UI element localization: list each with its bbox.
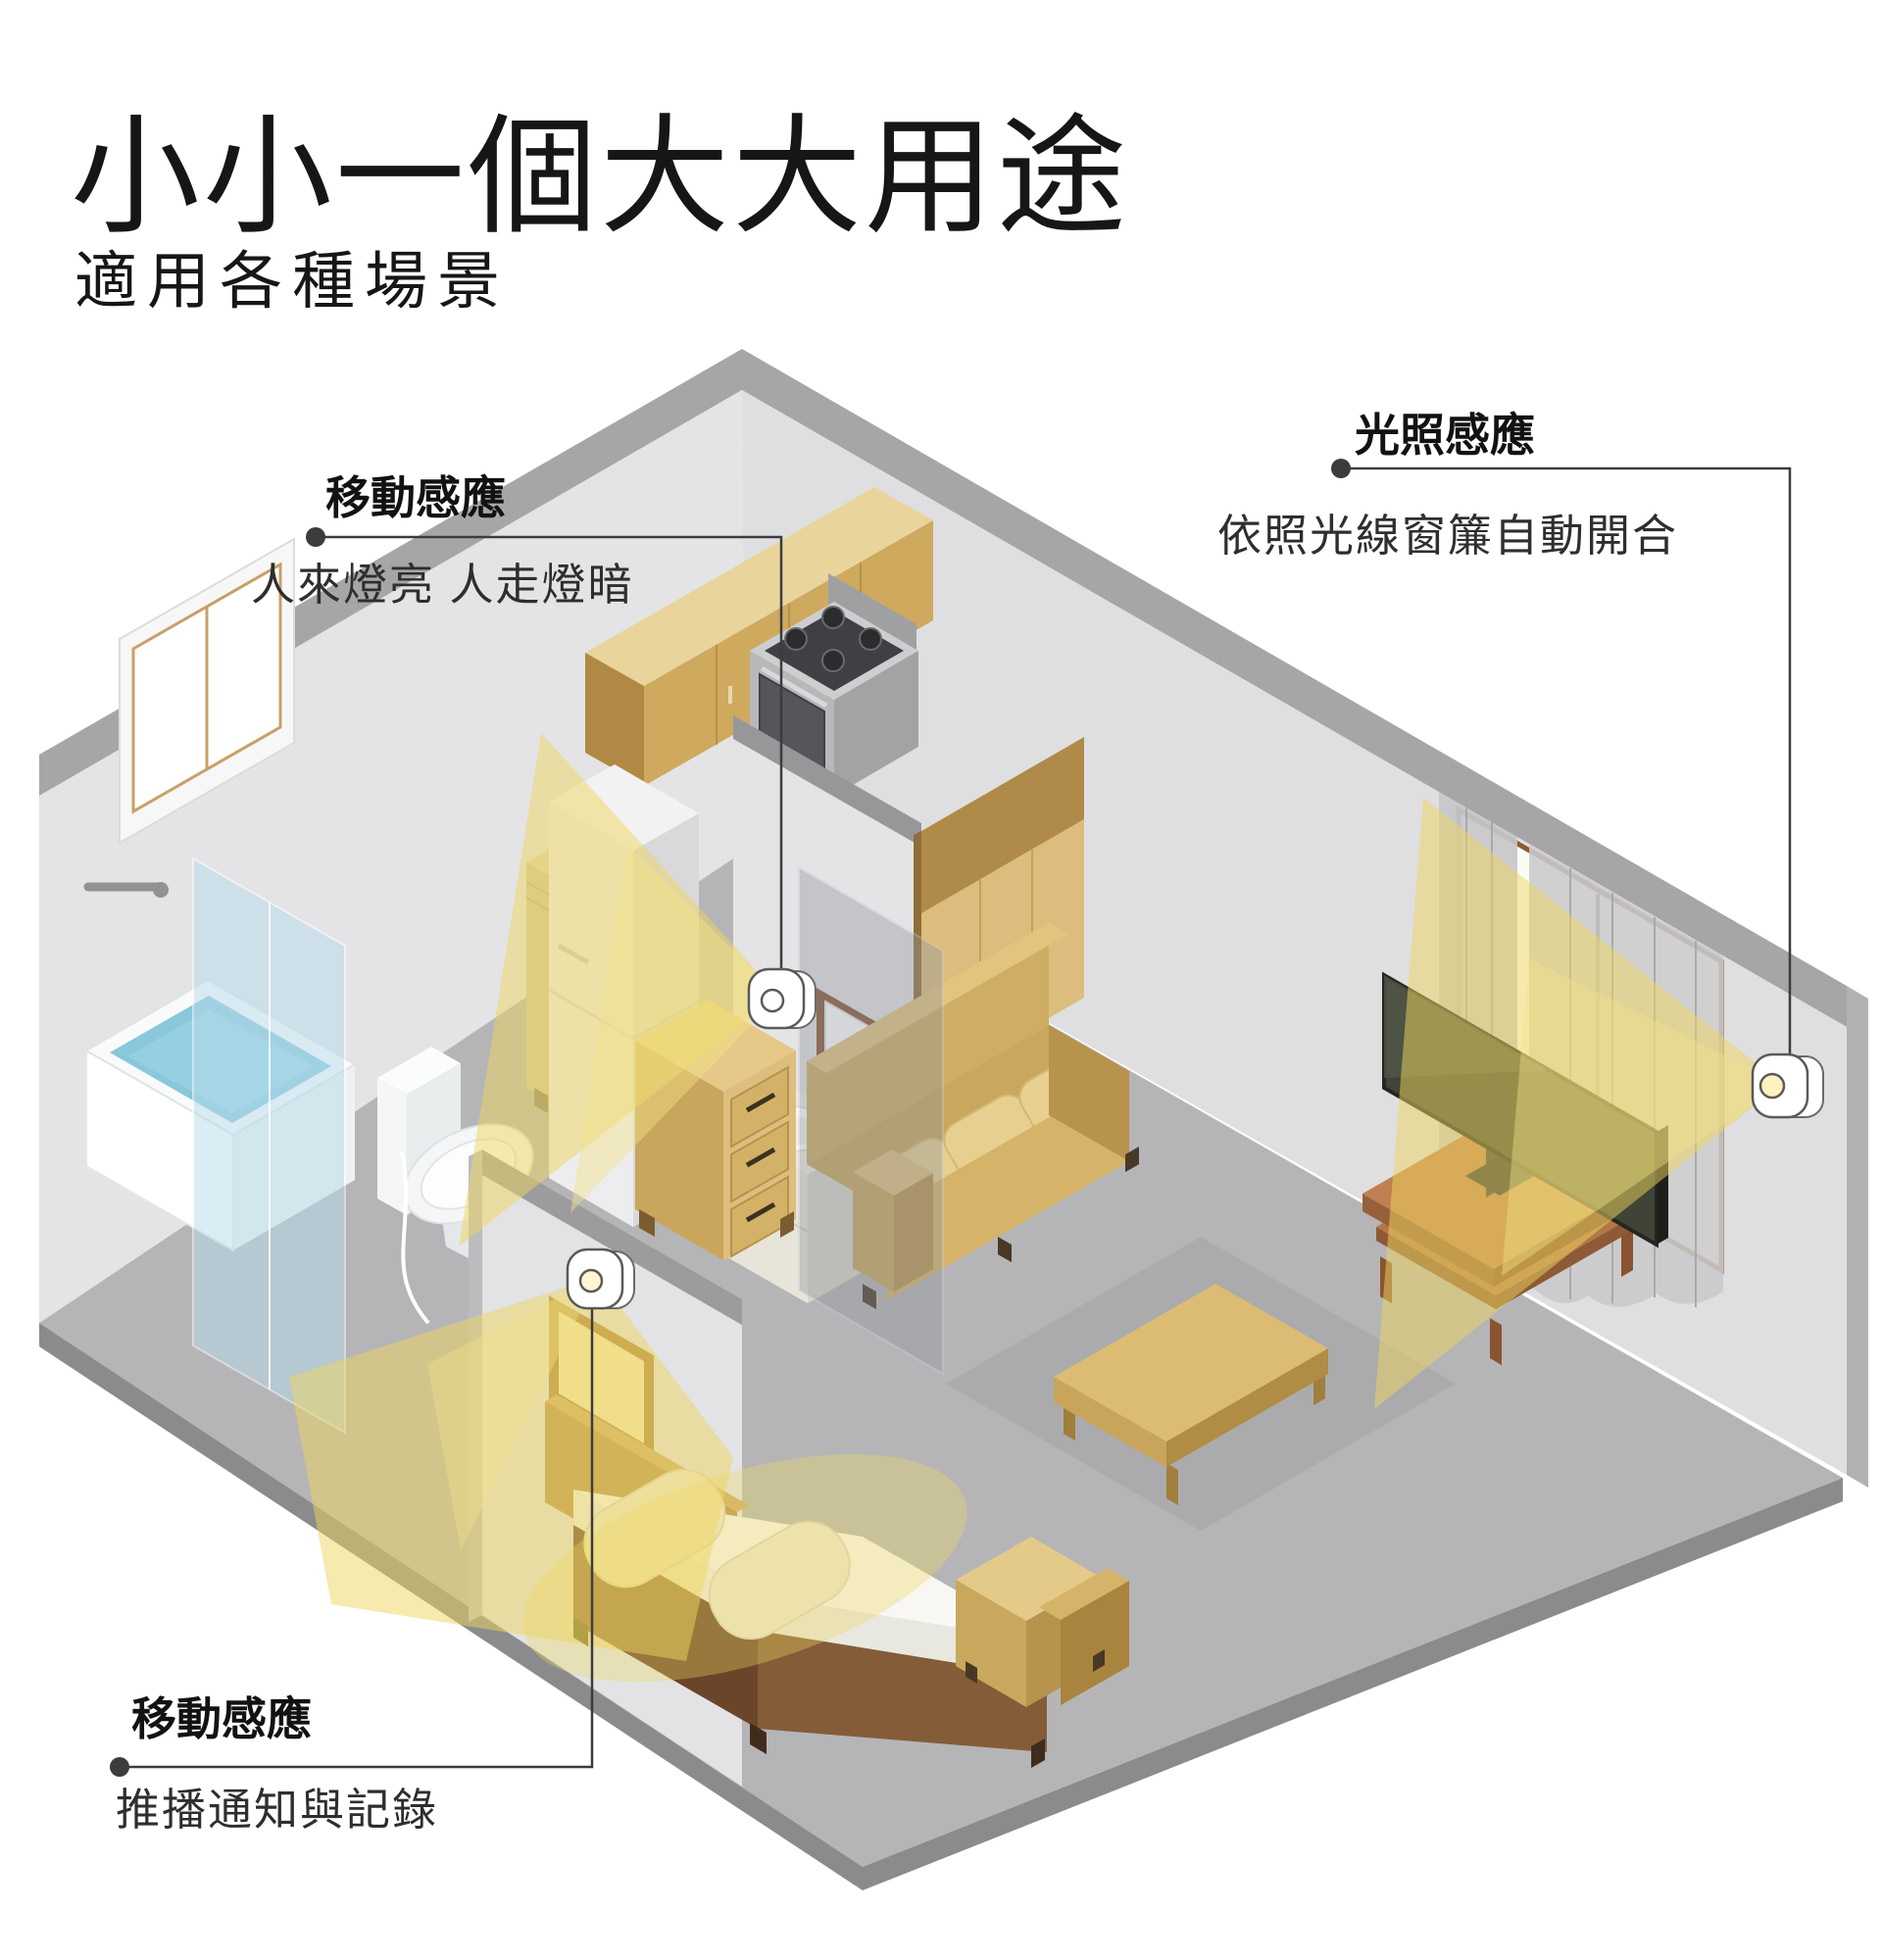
annotation-motion-kitchen-label: 移動感應 (325, 463, 506, 527)
annotation-light-curtain-description: 依照光線窗簾自動開合 (1217, 500, 1678, 563)
sensor-light-curtain-icon (1753, 1054, 1823, 1117)
annotation-motion-bedroom-label: 移動感應 (131, 1684, 312, 1748)
sensor-motion-kitchen-icon (749, 969, 816, 1028)
annotation-light-curtain-label: 光照感應 (1355, 400, 1535, 465)
glass-partition (799, 867, 943, 1374)
annotation-motion-kitchen-description: 人來燈亮 人走燈暗 (251, 549, 634, 612)
sensor-motion-bedroom-icon (568, 1249, 634, 1308)
leader-dot (1331, 459, 1351, 478)
leader-dot (306, 527, 325, 547)
page-subtitle: 適用各種場景 (74, 231, 510, 321)
infographic-page: 小小一個大大用途 適用各種場景 移動感應 人來燈亮 人走燈暗 光照感應 依照光線… (0, 0, 1882, 1960)
annotation-motion-bedroom-description: 推播通知與記錄 (116, 1774, 438, 1837)
shower-glass (193, 858, 345, 1433)
right-wall-cap (1847, 986, 1868, 1488)
